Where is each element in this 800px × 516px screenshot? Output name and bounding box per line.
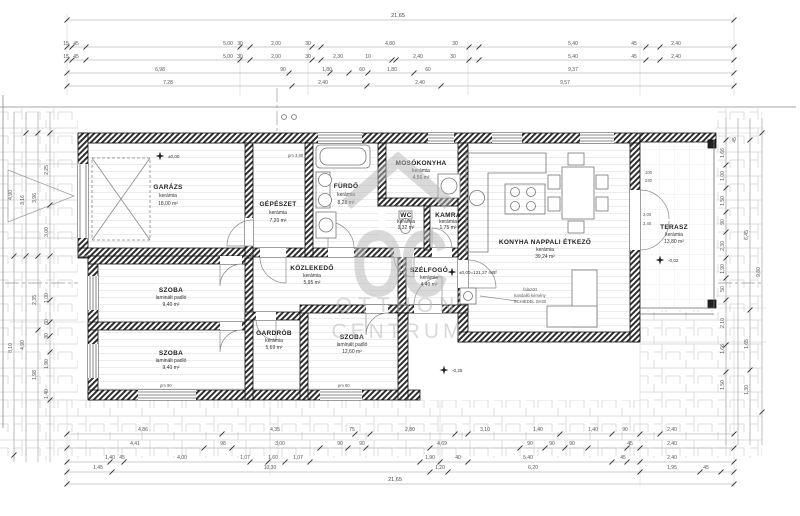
dim: 5,00 [223, 54, 233, 60]
dim: 1,90 [720, 264, 726, 274]
parapet-note: pm 90 [160, 383, 172, 388]
dim: 90 [527, 441, 533, 447]
dimension-text-top: 21,65 15 45 5,00 30 2,00 30 4,80 30 5,40… [63, 13, 681, 86]
dim: 1,00 [720, 171, 726, 181]
dim: 4,86 [138, 427, 148, 433]
dim: 30 [305, 54, 311, 60]
room-area: 12,60 m² [342, 349, 362, 355]
room-name: KONYHA NAPPALI ÉTKEZŐ [499, 237, 591, 246]
dim: 45 [73, 41, 79, 47]
dim: 4,80 [385, 41, 395, 47]
dim: 1,90 [44, 359, 50, 369]
dim: 3,00 [44, 227, 50, 237]
dim: 2,35 [32, 295, 38, 305]
dim: 45 [119, 455, 125, 461]
dim: 30 [237, 41, 243, 47]
dim: 30 [305, 41, 311, 47]
dim: 15 [63, 54, 69, 60]
dim: 1,66 [720, 148, 726, 158]
dim: 90 [549, 441, 555, 447]
washing-machine [316, 212, 336, 238]
dim: 9,57 [560, 80, 570, 86]
dim: 45 [631, 54, 637, 60]
dim: 5,40 [568, 54, 578, 60]
dim: 3,96 [32, 193, 38, 203]
dim: 4,69 [437, 441, 447, 447]
room-floor: kerámia [265, 338, 283, 344]
dim: 2,30 [333, 54, 343, 60]
dim: 9,80 [756, 267, 762, 277]
dim: 2,00 [271, 41, 281, 47]
bathtub [316, 145, 370, 168]
dim: 3,10 [480, 427, 490, 433]
dim: 1,80 [387, 67, 397, 73]
dim: 1,66 [720, 344, 726, 354]
room-name: SZOBA [159, 287, 183, 294]
dim: 75 [349, 427, 355, 433]
dim: 1,40 [105, 455, 115, 461]
room-name: TERASZ [660, 224, 688, 231]
dim: 4,35 [270, 427, 280, 433]
dim: 1,40 [44, 389, 50, 399]
dim: 1,00 [44, 293, 50, 303]
dim: 4,90 [8, 190, 14, 200]
dim: 3,00 [275, 441, 285, 447]
window-size-note: 240 [645, 178, 653, 183]
dim: 1,50 [720, 380, 726, 390]
dim-total-bottom: 21,65 [388, 477, 402, 483]
dim: 90 [280, 67, 286, 73]
room-area: 5,95 m² [304, 280, 321, 286]
dim: 1,95 [667, 465, 677, 471]
dim: 1,20 [435, 465, 445, 471]
dim: 1,07 [293, 455, 303, 461]
room-floor: kerámia [159, 193, 177, 199]
chimney-note: SCHIEDEL SH30 [514, 299, 547, 304]
room-floor: laminált padló [156, 358, 187, 364]
dim: 45 [627, 441, 633, 447]
room-floor: kerámia [303, 273, 321, 279]
room-area: 39,24 m² [535, 254, 555, 260]
dim: 5,40 [568, 41, 578, 47]
dim: 4,90 [20, 340, 26, 350]
floor-plan-page: 21,65 15 45 5,00 30 2,00 30 4,80 30 5,40… [0, 0, 800, 516]
dim: 6,98 [155, 67, 165, 73]
dim: 30 [450, 54, 456, 60]
dim: 2,40 [667, 441, 677, 447]
dim: 1,45 [93, 465, 103, 471]
dim: 90 [359, 441, 365, 447]
level-entry: -0,25 [452, 368, 463, 373]
room-name: SZOBA [159, 350, 183, 357]
dim: 6,45 [744, 230, 750, 240]
dim: 45 [620, 455, 626, 461]
dim: 90 [622, 427, 628, 433]
dim: 4,41 [130, 441, 140, 447]
dim: 50 [720, 286, 726, 292]
room-floor: kerámia [665, 232, 683, 238]
dim: 1,40 [588, 427, 598, 433]
dim: 45 [73, 54, 79, 60]
level-main: ±0,00=121,27 mBf [459, 270, 497, 275]
dim-total-top: 21,65 [391, 13, 405, 19]
room-area: 18,00 m² [158, 201, 178, 207]
dim: 4,00 [177, 455, 187, 461]
dim: 2,25 [44, 165, 50, 175]
room-area: 13,80 m² [664, 239, 684, 245]
room-name: GARÁZS [153, 182, 183, 191]
dim: 1,40 [533, 427, 543, 433]
dim: 3,16 [20, 195, 26, 205]
chimney [460, 288, 476, 304]
room-name: FÜRDŐ [334, 181, 359, 190]
dim: 60 [44, 319, 50, 325]
room-area: 7,20 m² [270, 218, 287, 224]
dim: 1,98 [32, 370, 38, 380]
room-name: GARDRÓB [256, 328, 292, 337]
dim: 10 [365, 54, 371, 60]
dim: 1,65 [744, 339, 750, 349]
door-size-note: 2,00 [643, 212, 652, 217]
dim: 30 [452, 41, 458, 47]
dim: 1,80 [322, 67, 332, 73]
watermark-word1: OTTHON [336, 294, 461, 317]
dim: 2,40 [667, 455, 677, 461]
dim: 90 [569, 441, 575, 447]
washbasin-icon [319, 194, 332, 207]
dim: 60 [425, 67, 431, 73]
dim: 40 [455, 455, 461, 461]
dim: 30 [44, 333, 50, 339]
dim: 45 [703, 465, 709, 471]
dim: 2,00 [271, 54, 281, 60]
dim: 1,30 [744, 385, 750, 395]
parapet-note: pm 90 [338, 383, 350, 388]
room-area: 5,69 m² [266, 345, 283, 351]
dim: 1,50 [720, 196, 726, 206]
room-floor: kerámia [269, 210, 287, 216]
dim: 98 [220, 441, 226, 447]
chimney-note: falazott [523, 287, 537, 292]
room-floor: laminált padló [156, 295, 187, 301]
dim: 10,30 [264, 465, 277, 471]
dim: 60 [359, 67, 365, 73]
room-floor: kerámia [536, 247, 554, 253]
dim: 5,40 [523, 455, 533, 461]
room-area: 9,40 m² [163, 302, 180, 308]
dim: 2,40 [667, 427, 677, 433]
dim: 45 [631, 41, 637, 47]
room-area: 9,40 m² [163, 365, 180, 371]
level-terasz: -0,02 [668, 258, 679, 263]
dim: 45 [732, 137, 738, 143]
dim: 90 [337, 441, 343, 447]
dim: 7,28 [163, 80, 173, 86]
dim: 90 [720, 219, 726, 225]
dim: 2,40 [413, 54, 423, 60]
door-size-note: 2,40 [643, 221, 652, 226]
dim: 1,90 [425, 455, 435, 461]
dim: 2,40 [318, 80, 328, 86]
dim: 5,00 [223, 41, 233, 47]
dim: 15 [63, 41, 69, 47]
parapet-note: pm 3,80 [288, 153, 304, 158]
dim: 2,40 [671, 41, 681, 47]
floor-plan-drawing: 21,65 15 45 5,00 30 2,00 30 4,80 30 5,40… [0, 0, 800, 516]
dim: 2,30 [720, 241, 726, 251]
dim: 6,20 [528, 465, 538, 471]
level-garage: ±0,00 [168, 154, 180, 159]
chimney-note: kandalló kémény [514, 293, 546, 298]
dim: 2,80 [405, 427, 415, 433]
dim: 1,07 [240, 455, 250, 461]
dim: 1,60 [268, 455, 278, 461]
dim: 2,10 [720, 318, 726, 328]
watermark-word2: CENTRUM [332, 320, 465, 343]
room-name: GÉPÉSZET [259, 199, 296, 208]
room-name: KÖZLEKEDŐ [290, 263, 334, 272]
dim: 2,40 [671, 54, 681, 60]
washbasin-icon [319, 174, 332, 187]
dim: 8,10 [8, 343, 14, 353]
dim: 9,37 [568, 67, 578, 73]
window-size-note: 100 [645, 170, 653, 175]
dim: 2,40 [415, 80, 425, 86]
dim: 30 [237, 54, 243, 60]
